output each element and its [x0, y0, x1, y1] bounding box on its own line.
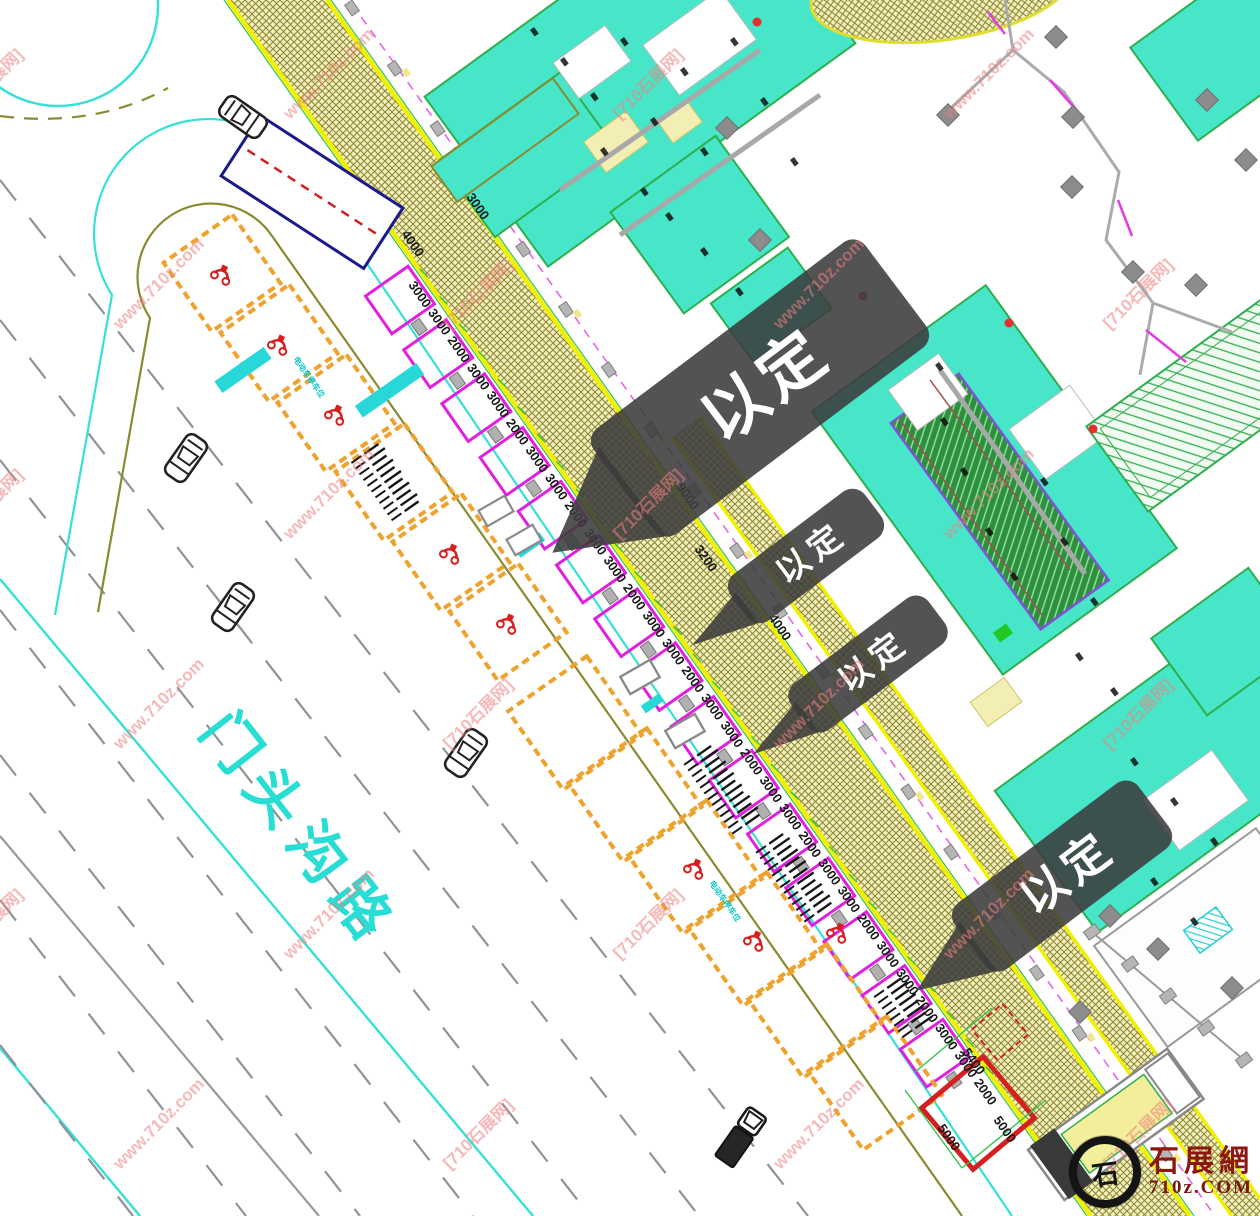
logo-site-name: 石展網	[1149, 1146, 1254, 1178]
site-plan-screenshot: 电动车停车位电动车停车位 30003000200030003000200	[0, 0, 1260, 1216]
red-dot	[753, 18, 762, 27]
red-dot	[1089, 425, 1098, 434]
logo-icon-char: 石	[1089, 1151, 1121, 1193]
red-dot	[1005, 319, 1014, 328]
site-plan: 电动车停车位电动车停车位 30003000200030003000200	[0, 0, 1260, 1216]
watermark-logo: 石 石展網 710z.COM	[1069, 1136, 1254, 1208]
ink-circle-icon: 石	[1064, 1131, 1145, 1212]
logo-domain: 710z.COM	[1149, 1178, 1254, 1198]
